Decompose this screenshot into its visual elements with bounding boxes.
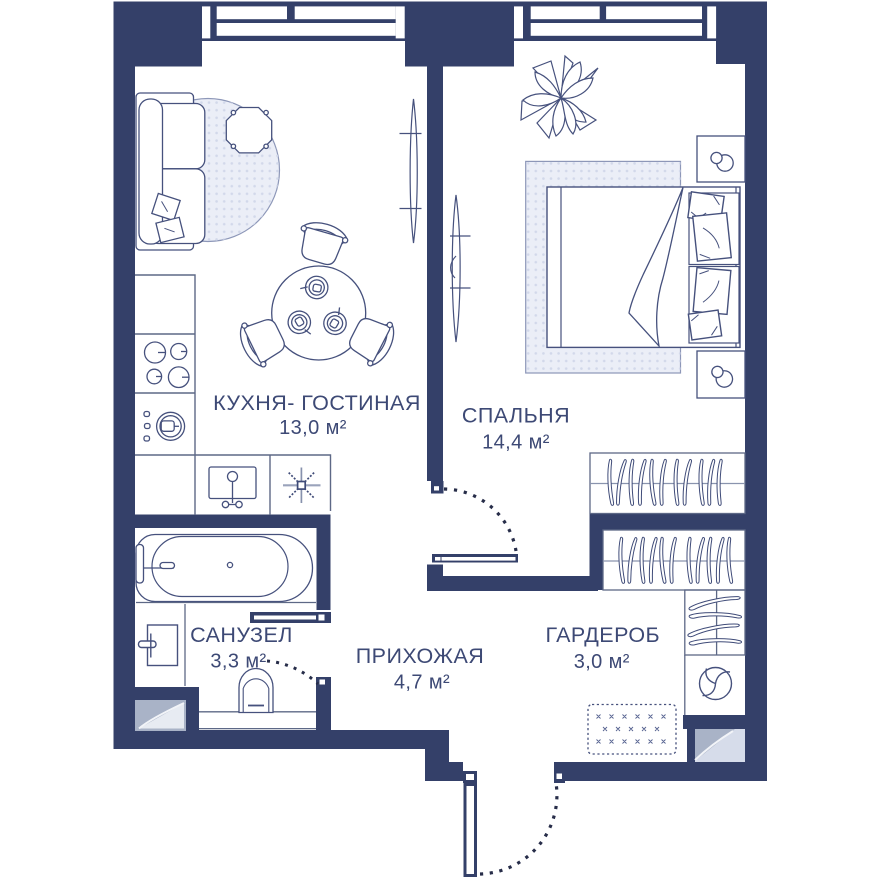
svg-text:КУХНЯ- ГОСТИНАЯ: КУХНЯ- ГОСТИНАЯ <box>213 391 421 415</box>
svg-text:СПАЛЬНЯ: СПАЛЬНЯ <box>462 404 570 428</box>
svg-text:3,3 м²: 3,3 м² <box>210 651 266 673</box>
svg-text:ГАРДЕРОБ: ГАРДЕРОБ <box>545 623 660 647</box>
svg-text:13,0 м²: 13,0 м² <box>279 417 347 439</box>
svg-text:3,0 м²: 3,0 м² <box>574 651 630 673</box>
svg-text:14,4 м²: 14,4 м² <box>482 432 550 454</box>
svg-text:ПРИХОЖАЯ: ПРИХОЖАЯ <box>356 644 484 668</box>
svg-text:САНУЗЕЛ: САНУЗЕЛ <box>190 623 293 647</box>
svg-text:4,7 м²: 4,7 м² <box>394 672 450 694</box>
